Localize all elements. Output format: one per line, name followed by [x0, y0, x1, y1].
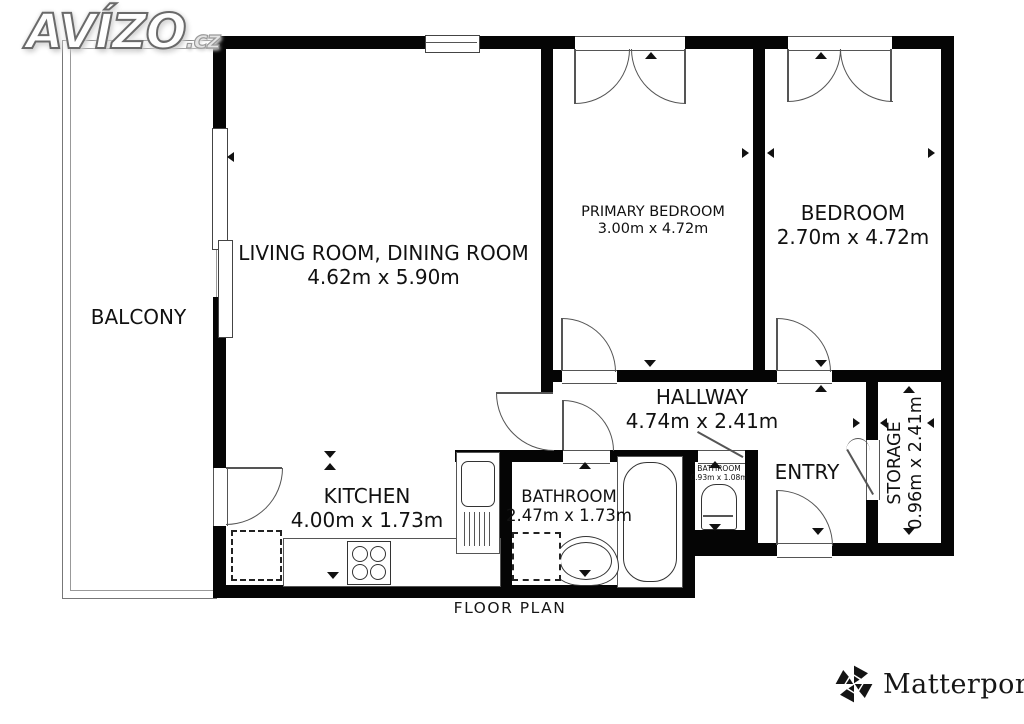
measure-arrow-icon [324, 451, 336, 458]
room-label-bathroom: BATHROOM 2.47m x 1.73m [500, 487, 638, 526]
wall [866, 382, 878, 440]
door-leaf [787, 49, 789, 102]
door-leaf [561, 318, 563, 371]
measure-arrow-icon [815, 360, 827, 367]
door-swing-arc [562, 318, 616, 372]
door-leaf [776, 318, 778, 371]
door-swing-arc [840, 49, 893, 102]
measure-arrow-icon [767, 148, 774, 158]
wall [213, 36, 425, 49]
room-label-entry: ENTRY [757, 461, 857, 485]
room-name: BATHROOM [500, 487, 638, 506]
room-dimensions: 4.62m x 5.90m [226, 266, 541, 290]
measure-arrow-icon [227, 152, 234, 162]
room-dimensions: 0.93m x 1.08m [688, 473, 750, 482]
room-dimensions: 2.47m x 1.73m [500, 506, 638, 525]
room-name: LIVING ROOM, DINING ROOM [226, 242, 541, 266]
wall [753, 48, 765, 370]
window-line [426, 42, 477, 43]
measure-arrow-icon [812, 528, 824, 535]
appliance-space [512, 532, 561, 581]
stove-burner [352, 546, 368, 562]
window [212, 128, 228, 250]
door-leaf [226, 467, 282, 469]
room-dimensions: 0.96m x 2.41m [906, 396, 926, 530]
door-leaf [496, 392, 553, 394]
window [425, 35, 480, 53]
room-dimensions: 2.70m x 4.72m [765, 226, 941, 250]
door-opening [698, 450, 745, 464]
room-name: BEDROOM [765, 202, 941, 226]
measure-arrow-icon [579, 570, 591, 577]
door-swing-arc [575, 49, 630, 104]
stove-burner [370, 564, 386, 580]
room-label-living-room: LIVING ROOM, DINING ROOM 4.62m x 5.90m [226, 242, 541, 289]
measure-arrow-icon [644, 360, 656, 367]
measure-arrow-icon [579, 462, 591, 469]
door-leaf [684, 49, 686, 104]
room-name: STORAGE [885, 421, 905, 504]
wall [478, 36, 575, 49]
matterport-logo: Matterport® [834, 664, 1024, 704]
avizo-logo: AVÍZO.cz [26, 4, 220, 60]
matterport-icon [834, 664, 874, 704]
wall [685, 36, 788, 49]
wall [695, 543, 777, 556]
room-dimensions: 4.74m x 2.41m [557, 410, 847, 434]
door-opening [777, 370, 832, 384]
room-label-storage: STORAGE 0.96m x 2.41m [885, 381, 931, 545]
appliance-space [231, 530, 282, 581]
stove-burner [352, 564, 368, 580]
measure-arrow-icon [327, 572, 339, 579]
room-name: BATHROOM [688, 464, 750, 473]
floor-plan-caption: FLOOR PLAN [410, 599, 610, 617]
matterport-logo-text: Matterport® [883, 669, 1024, 700]
floor-plan: BALCONY LIVING ROOM, DINING ROOM 4.62m x… [0, 0, 1024, 724]
room-name: ENTRY [757, 461, 857, 485]
stove-burner [370, 546, 386, 562]
wall [941, 36, 954, 556]
wall [866, 500, 878, 543]
measure-arrow-icon [853, 418, 860, 428]
room-label-small-bathroom: BATHROOM 0.93m x 1.08m [688, 464, 750, 483]
room-name: PRIMARY BEDROOM [553, 204, 753, 221]
room-name: KITCHEN [236, 485, 498, 509]
door-leaf [890, 49, 892, 102]
room-label-kitchen: KITCHEN 4.00m x 1.73m [236, 485, 498, 532]
room-label-bedroom: BEDROOM 2.70m x 4.72m [765, 202, 941, 249]
room-dimensions: 4.00m x 1.73m [236, 509, 498, 533]
toilet-line [703, 515, 733, 517]
measure-arrow-icon [815, 52, 827, 59]
wall [617, 370, 777, 382]
measure-arrow-icon [928, 148, 935, 158]
avizo-logo-suffix: .cz [186, 26, 220, 54]
door-swing-arc [496, 393, 554, 451]
room-label-primary-bedroom: PRIMARY BEDROOM 3.00m x 4.72m [553, 204, 753, 238]
room-name: BALCONY [62, 306, 215, 330]
measure-arrow-icon [742, 148, 749, 158]
door-swing-arc [777, 490, 833, 546]
measure-arrow-icon [709, 524, 721, 531]
measure-arrow-icon [645, 52, 657, 59]
room-label-hallway: HALLWAY 4.74m x 2.41m [557, 386, 847, 433]
wall [695, 530, 745, 543]
page: { "branding": { "avizo": "AVÍZO", "avizo… [0, 0, 1024, 724]
room-name: HALLWAY [557, 386, 847, 410]
wall [541, 48, 553, 393]
avizo-logo-text: AVÍZO [26, 4, 186, 60]
room-dimensions: 3.00m x 4.72m [553, 221, 753, 238]
wall [541, 370, 562, 382]
door-leaf [776, 490, 778, 545]
door-leaf [574, 49, 576, 104]
measure-arrow-icon [324, 463, 336, 470]
door-swing-arc [631, 49, 686, 104]
room-label-balcony: BALCONY [62, 306, 215, 330]
door-opening [562, 370, 617, 384]
